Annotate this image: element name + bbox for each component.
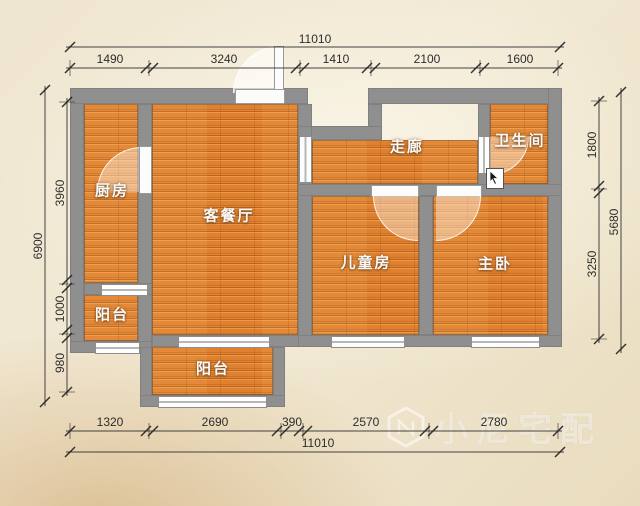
dim-left-total: 6900 bbox=[31, 233, 45, 260]
window-balcony-left bbox=[95, 342, 140, 354]
wall-kitchen-living-divider bbox=[138, 104, 152, 353]
watermark-cube-logo bbox=[386, 405, 426, 449]
room-label-corridor: 走廊 bbox=[390, 136, 424, 157]
room-label-balcony-left: 阳台 bbox=[95, 304, 129, 325]
floor-plan: 小尼宅配 厨房 bbox=[0, 0, 640, 506]
room-label-living-dining: 客餐厅 bbox=[203, 205, 254, 226]
dim-bottom-seg-4: 2570 bbox=[353, 415, 380, 429]
wall-right bbox=[548, 88, 562, 347]
entrance-door-arc bbox=[233, 46, 280, 93]
wall-kids-master-divider bbox=[419, 196, 433, 335]
wall-top-right bbox=[368, 88, 562, 104]
window-living-bottom bbox=[178, 336, 270, 348]
dim-bottom-seg-3: 390 bbox=[282, 415, 302, 429]
entrance-door-leaf bbox=[274, 46, 284, 92]
dim-right-seg-2: 3250 bbox=[585, 251, 599, 278]
dim-top-seg-5: 1600 bbox=[507, 52, 534, 66]
window-living-corridor-opening bbox=[299, 136, 312, 183]
cursor-icon bbox=[486, 168, 504, 189]
dim-left-seg-1: 3960 bbox=[53, 180, 67, 207]
dim-left-seg-3: 980 bbox=[53, 353, 67, 373]
dim-top-seg-3: 1410 bbox=[323, 52, 350, 66]
room-label-master-bedroom: 主卧 bbox=[478, 253, 512, 274]
dim-top-seg-4: 2100 bbox=[414, 52, 441, 66]
window-master-bedroom bbox=[471, 336, 540, 348]
dim-top-total: 11010 bbox=[299, 32, 331, 46]
room-label-balcony-bottom: 阳台 bbox=[196, 358, 230, 379]
wall-left bbox=[70, 88, 84, 353]
room-label-kids-room: 儿童房 bbox=[340, 252, 391, 273]
dim-bottom-seg-5: 2780 bbox=[481, 415, 508, 429]
wall-corridor-bottom bbox=[298, 184, 562, 196]
dim-top-seg-1: 1490 bbox=[97, 52, 124, 66]
dim-bottom-total: 11010 bbox=[302, 436, 334, 450]
room-label-bathroom: 卫生间 bbox=[494, 130, 545, 151]
room-label-kitchen: 厨房 bbox=[95, 180, 129, 201]
dim-top-seg-2: 3240 bbox=[211, 52, 238, 66]
dim-right-total: 5680 bbox=[607, 209, 621, 236]
window-kitchen-balcony bbox=[101, 284, 148, 296]
entrance-door-threshold bbox=[235, 89, 285, 104]
kitchen-door-leaf bbox=[139, 146, 152, 194]
watermark-text: 小尼宅配 bbox=[434, 402, 602, 451]
dim-left-seg-2: 1000 bbox=[53, 296, 67, 323]
window-balcony-bottom bbox=[158, 396, 267, 408]
dim-bottom-seg-2: 2690 bbox=[202, 415, 229, 429]
dim-bottom-seg-1: 1320 bbox=[97, 415, 124, 429]
window-kids-room bbox=[331, 336, 405, 348]
dim-right-seg-1: 1800 bbox=[585, 132, 599, 159]
